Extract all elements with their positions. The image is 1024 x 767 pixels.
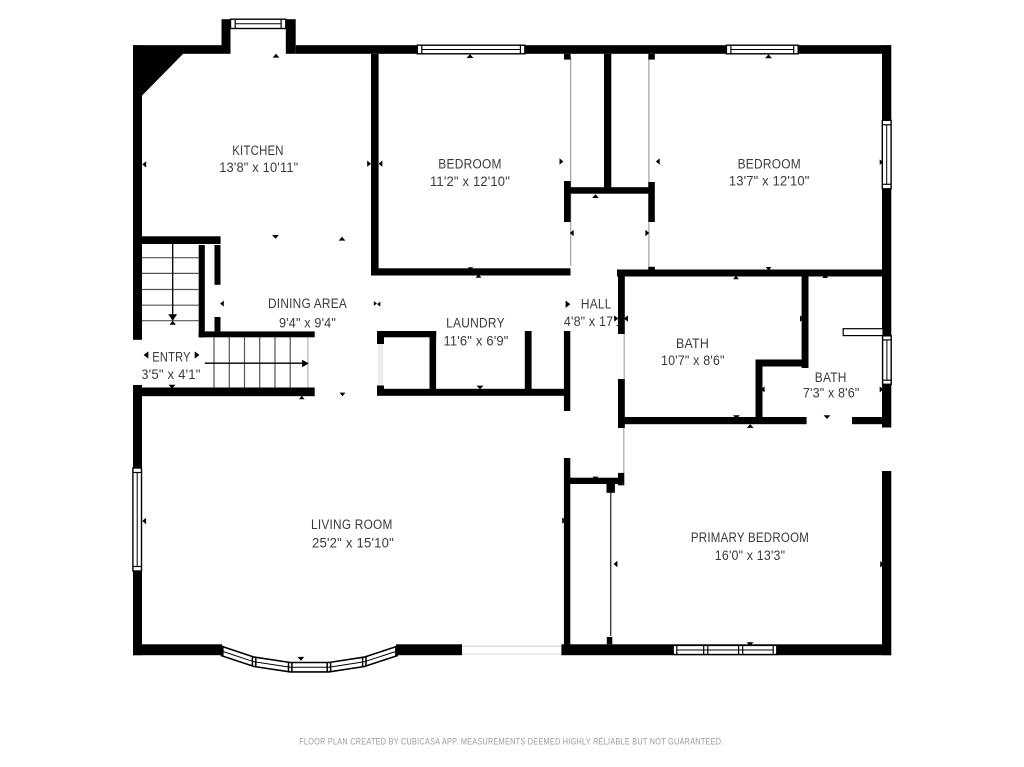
- svg-text:PRIMARY BEDROOM: PRIMARY BEDROOM: [691, 530, 809, 546]
- svg-text:HALL: HALL: [581, 296, 612, 312]
- svg-text:4'8" x 17'1": 4'8" x 17'1": [564, 314, 628, 330]
- svg-text:25'2" x 15'10": 25'2" x 15'10": [312, 536, 394, 552]
- svg-text:3'5" x 4'1": 3'5" x 4'1": [141, 367, 201, 383]
- svg-text:7'3" x 8'6": 7'3" x 8'6": [803, 385, 860, 401]
- svg-text:16'0" x 13'3": 16'0" x 13'3": [715, 548, 785, 564]
- svg-text:13'7" x 12'10": 13'7" x 12'10": [729, 174, 810, 190]
- svg-text:BEDROOM: BEDROOM: [738, 157, 801, 173]
- svg-text:BATH: BATH: [676, 336, 709, 352]
- svg-text:11'6" x 6'9": 11'6" x 6'9": [443, 334, 508, 350]
- svg-text:BATH: BATH: [815, 370, 847, 386]
- svg-text:KITCHEN: KITCHEN: [232, 143, 284, 159]
- svg-text:LAUNDRY: LAUNDRY: [446, 316, 505, 332]
- svg-text:FLOOR PLAN CREATED BY CUBICASA: FLOOR PLAN CREATED BY CUBICASA APP. MEAS…: [299, 736, 723, 746]
- svg-text:13'8" x 10'11": 13'8" x 10'11": [219, 160, 298, 176]
- svg-text:10'7" x 8'6": 10'7" x 8'6": [661, 353, 725, 369]
- svg-text:ENTRY: ENTRY: [152, 350, 191, 366]
- svg-text:DINING AREA: DINING AREA: [268, 296, 347, 312]
- svg-text:9'4" x 9'4": 9'4" x 9'4": [279, 316, 336, 332]
- svg-text:LIVING ROOM: LIVING ROOM: [311, 517, 393, 533]
- svg-text:11'2" x 12'10": 11'2" x 12'10": [430, 174, 510, 190]
- svg-text:BEDROOM: BEDROOM: [438, 157, 501, 173]
